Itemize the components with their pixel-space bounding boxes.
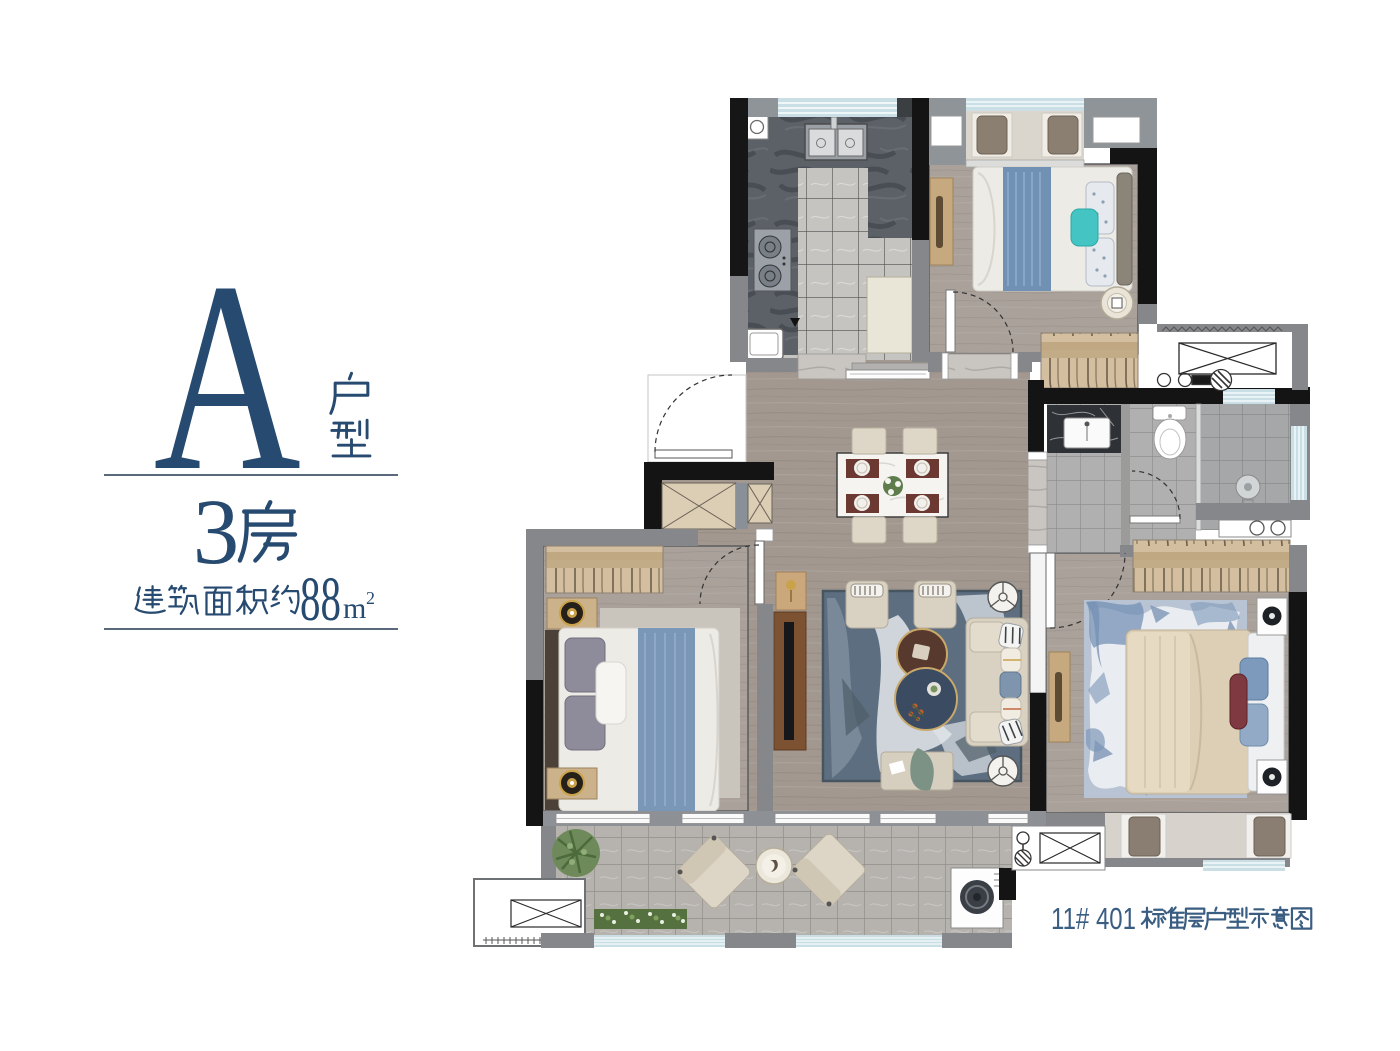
svg-text:m: m [343,592,366,625]
svg-text:2: 2 [366,588,375,608]
svg-text:11# 401: 11# 401 [1051,901,1136,936]
svg-text:3: 3 [193,481,240,584]
svg-text:88: 88 [300,566,341,634]
